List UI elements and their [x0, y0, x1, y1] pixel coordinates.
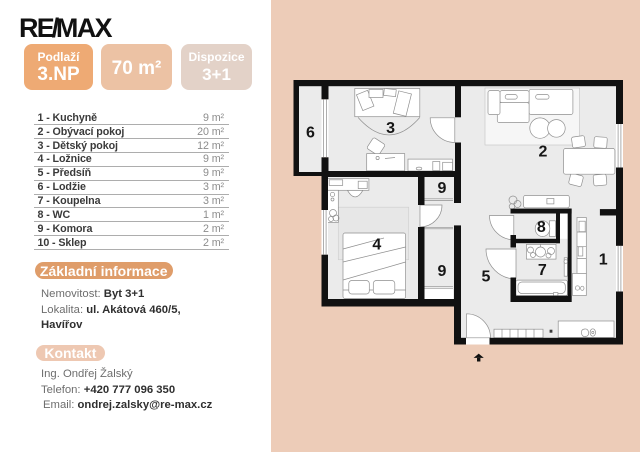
svg-text:4: 4: [372, 237, 381, 254]
svg-text:2: 2: [539, 144, 548, 161]
svg-text:7: 7: [538, 262, 547, 279]
svg-text:5: 5: [482, 269, 491, 286]
svg-text:6: 6: [306, 125, 315, 142]
svg-text:1: 1: [599, 252, 608, 269]
svg-text:8: 8: [537, 219, 546, 236]
svg-text:3: 3: [386, 120, 395, 137]
svg-text:9: 9: [438, 263, 447, 280]
svg-text:9: 9: [438, 180, 447, 197]
